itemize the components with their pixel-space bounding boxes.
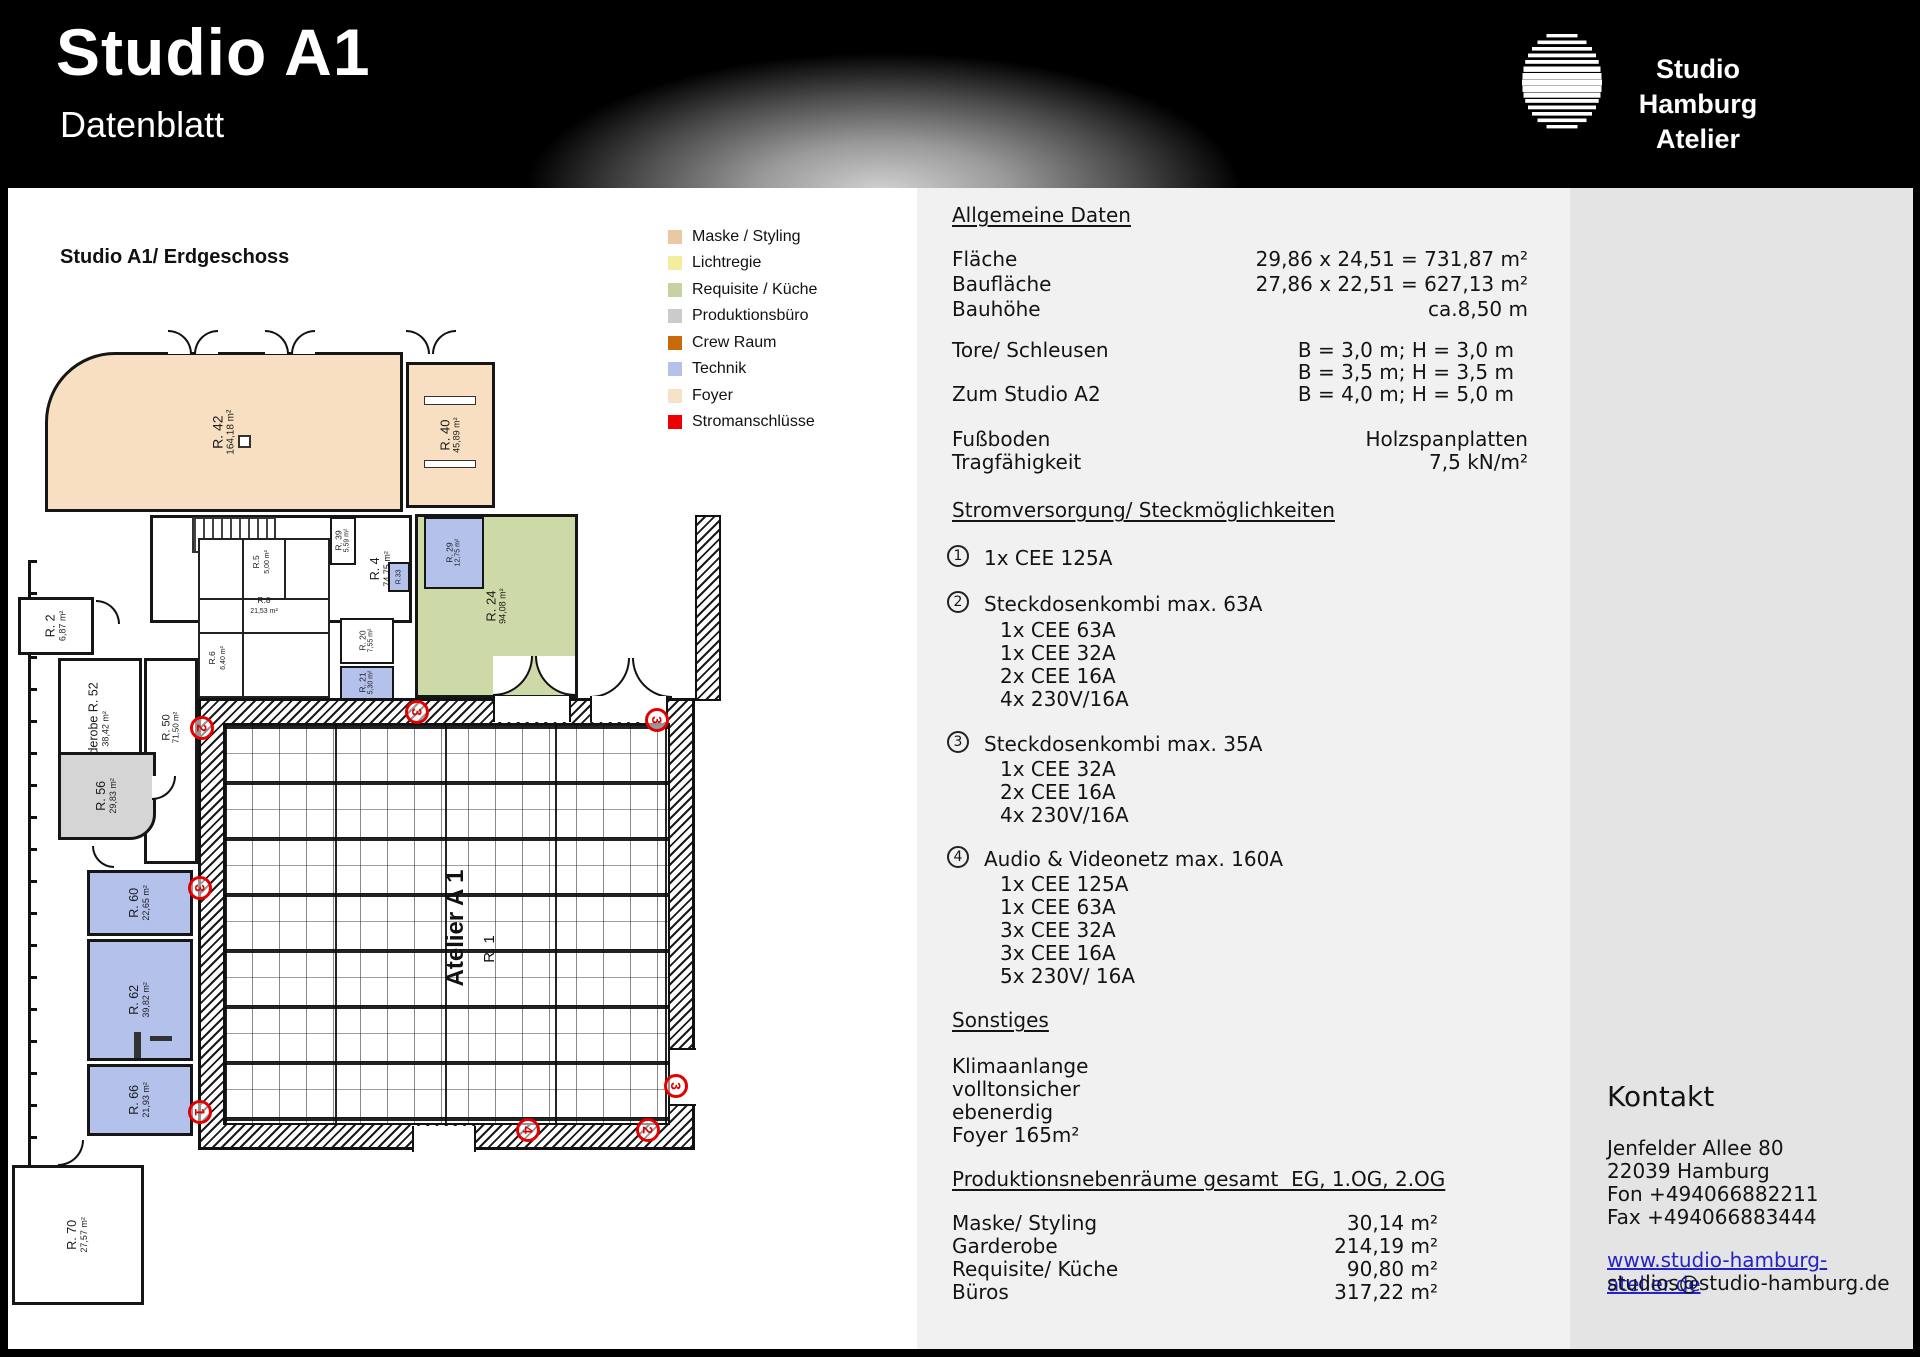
room-r33-technik: R.33: [388, 562, 410, 592]
general-label: Fußboden: [952, 427, 1050, 451]
power-item: 1x CEE 32A: [1000, 757, 1116, 781]
logo-line2: Atelier: [1598, 122, 1798, 157]
stromanschluss-marker: 3: [664, 1074, 688, 1098]
thick-wall-hatch: [695, 515, 721, 701]
room-r66-technik: R. 6621,93 m²: [87, 1064, 193, 1136]
power-item: 1x CEE 32A: [1000, 641, 1116, 665]
general-label: Fläche: [952, 247, 1017, 271]
power-group-title: Steckdosenkombi max. 35A: [984, 732, 1262, 756]
contact-heading: Kontakt: [1607, 1080, 1714, 1113]
studio-door-opening: [412, 1126, 476, 1152]
general-label: Baufläche: [952, 272, 1051, 296]
column-symbol: [238, 435, 251, 448]
misc-item: ebenerdig: [952, 1100, 1053, 1124]
contact-address-line: Jenfelder Allee 80: [1607, 1136, 1784, 1160]
studio-hamburg-globe-icon: [1520, 34, 1604, 134]
circled-number-1: 1: [947, 545, 969, 567]
legend-swatch-technik: [668, 362, 682, 376]
logo-line1: Studio Hamburg: [1598, 52, 1798, 122]
page-subtitle: Datenblatt: [60, 104, 224, 146]
power-item: 4x 230V/16A: [1000, 803, 1129, 827]
siderooms-label: Requisite/ Küche: [952, 1257, 1118, 1281]
stromanschluss-marker: 3: [405, 700, 429, 724]
room-r40-foyer: R. 4045,89 m²: [406, 362, 495, 508]
siderooms-value: 317,22 m²: [1150, 1280, 1438, 1304]
misc-item: Klimaanlange: [952, 1054, 1088, 1078]
power-item: 2x CEE 16A: [1000, 780, 1116, 804]
stromanschluss-marker: 2: [190, 716, 214, 740]
power-item: 1x CEE 63A: [1000, 895, 1116, 919]
room-r39: R. 395,59 m²: [330, 517, 356, 565]
power-item: 4x 230V/16A: [1000, 687, 1129, 711]
stromanschluss-marker: 1: [188, 1100, 212, 1124]
siderooms-label: Maske/ Styling: [952, 1211, 1097, 1235]
stromanschluss-marker: 3: [645, 708, 669, 732]
stromanschluss-marker: 2: [636, 1118, 660, 1142]
general-value: 7,5 kN/m²: [1150, 450, 1528, 474]
power-item: 1x CEE 125A: [1000, 872, 1128, 896]
room-r2: R. 26,87 m²: [18, 597, 94, 655]
siderooms-value: 214,19 m²: [1150, 1234, 1438, 1258]
floorplan-title: Studio A1/ Erdgeschoss: [60, 246, 289, 269]
general-label: Tragfähigkeit: [952, 450, 1081, 474]
stromanschluss-marker: 4: [516, 1118, 540, 1142]
misc-heading: Sonstiges: [952, 1008, 1049, 1032]
room-r6-label: R.66,40 m²: [208, 638, 228, 678]
logo-wordmark: Studio Hamburg Atelier: [1598, 52, 1798, 157]
circled-number-2: 2: [947, 591, 969, 613]
circled-number-3: 3: [947, 731, 969, 753]
studio-room-number: R. 1: [481, 909, 499, 989]
power-item: 5x 230V/ 16A: [1000, 964, 1135, 988]
header-glow: [400, 0, 1330, 188]
room-r5-label: R.55,00 m²: [252, 542, 272, 582]
misc-item: Foyer 165m²: [952, 1123, 1079, 1147]
general-value: B = 3,0 m; H = 3,0 m: [1150, 338, 1514, 362]
furniture-symbol: [134, 1032, 141, 1058]
legend-swatch-crewraum: [668, 336, 682, 350]
general-value: 29,86 x 24,51 = 731,87 m²: [1150, 247, 1528, 271]
siderooms-value: 30,14 m²: [1150, 1211, 1438, 1235]
room-r42-foyer: R. 42164,18 m²: [45, 352, 403, 512]
room-r20: R. 207,55 m²: [340, 618, 394, 664]
table-symbol: [424, 460, 476, 468]
room-r70: R. 7027,57 m²: [12, 1165, 144, 1305]
page-title: Studio A1: [56, 14, 371, 90]
room-r60-technik: R. 6022,65 m²: [87, 870, 193, 936]
misc-item: volltonsicher: [952, 1077, 1080, 1101]
power-item: 2x CEE 16A: [1000, 664, 1116, 688]
page-header: Studio A1 Datenblatt Studi: [0, 0, 1920, 188]
general-label: Bauhöhe: [952, 297, 1041, 321]
room-r56-produktionsbuero: R. 5629,83 m²: [58, 752, 156, 840]
circled-number-4: 4: [947, 846, 969, 868]
table-symbol: [424, 396, 476, 405]
power-item: 1x CEE 63A: [1000, 618, 1116, 642]
power-heading: Stromversorgung/ Steckmöglichkeiten: [952, 498, 1335, 522]
power-item: 3x CEE 32A: [1000, 918, 1116, 942]
room-r8-label: R.821,53 m²: [240, 596, 288, 616]
siderooms-label: Büros: [952, 1280, 1009, 1304]
siderooms-label: Garderobe: [952, 1234, 1058, 1258]
legend-swatch-requisite: [668, 283, 682, 297]
legend-swatch-lichtregie: [668, 256, 682, 270]
general-value: ca.8,50 m: [1150, 297, 1528, 321]
power-item: 3x CEE 16A: [1000, 941, 1116, 965]
general-value: B = 4,0 m; H = 5,0 m: [1150, 382, 1514, 406]
wall: [200, 632, 328, 634]
furniture-symbol: [150, 1036, 172, 1041]
contact-fax: Fax +494066883444: [1607, 1205, 1817, 1229]
general-value: 27,86 x 22,51 = 627,13 m²: [1150, 272, 1528, 296]
contact-email: studios@studio-hamburg.de: [1607, 1271, 1890, 1295]
contact-phone: Fon +494066882211: [1607, 1182, 1819, 1206]
siderooms-value: 90,80 m²: [1150, 1257, 1438, 1281]
siderooms-heading: Produktionsnebenräume gesamt EG, 1.OG, 2…: [952, 1167, 1445, 1191]
legend-swatch-produktionsbuero: [668, 309, 682, 323]
general-value: Holzspanplatten: [1150, 427, 1528, 451]
room-r29-technik: R. 2912,75 m²: [424, 517, 484, 589]
contact-address-line: 22039 Hamburg: [1607, 1159, 1770, 1183]
general-label: Zum Studio A2: [952, 382, 1101, 406]
general-label: Tore/ Schleusen: [952, 338, 1109, 362]
legend-swatch-maske: [668, 230, 682, 244]
legend-swatch-stromanschluesse: [668, 415, 682, 429]
general-value: B = 3,5 m; H = 3,5 m: [1150, 360, 1514, 384]
stromanschluss-marker: 3: [188, 876, 212, 900]
studio-name-label: Atelier A 1: [442, 828, 468, 1028]
power-group-title: Steckdosenkombi max. 63A: [984, 592, 1262, 616]
legend-swatch-foyer: [668, 389, 682, 403]
wall: [242, 540, 244, 696]
wall: [284, 540, 286, 598]
general-heading: Allgemeine Daten: [952, 203, 1131, 227]
power-group-title: 1x CEE 125A: [984, 546, 1112, 570]
studio-door-opening: [493, 696, 571, 722]
room-r21-technik: R. 215,30 m²: [340, 666, 394, 700]
power-group-title: Audio & Videonetz max. 160A: [984, 847, 1283, 871]
